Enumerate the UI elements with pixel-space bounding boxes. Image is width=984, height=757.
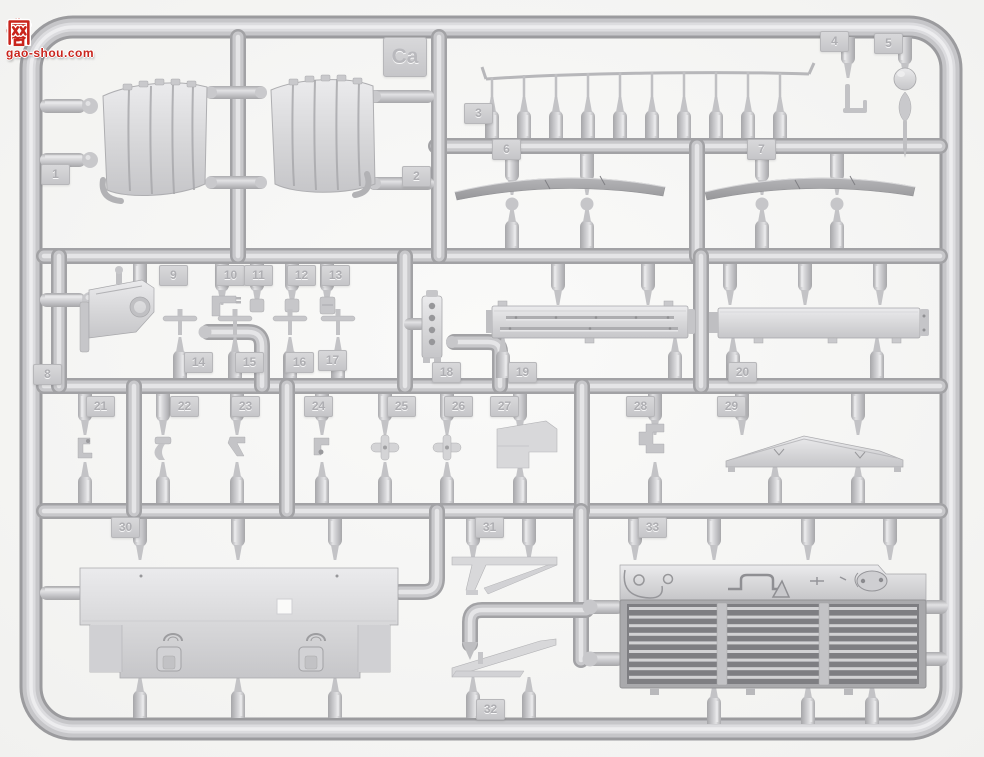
part-tab-29: 29 <box>717 396 746 417</box>
part-tab-28: 28 <box>626 396 655 417</box>
part-tab-27: 27 <box>490 396 519 417</box>
part-tab-24: 24 <box>304 396 333 417</box>
part-tab-25: 25 <box>387 396 416 417</box>
part-tab-32: 32 <box>476 699 505 720</box>
watermark-site-text: gao-shou.com <box>6 46 94 60</box>
part-18-ladder <box>422 290 442 363</box>
kit-sprue-photo: Ca 1 2 3 4 5 6 7 8 9 10 11 12 13 14 15 1… <box>0 0 984 757</box>
watermark-logo: 高 网 <box>6 18 94 46</box>
part-tab-11: 11 <box>244 265 273 286</box>
part-tab-13: 13 <box>321 265 350 286</box>
part-tab-23: 23 <box>231 396 260 417</box>
part-tab-18: 18 <box>432 362 461 383</box>
part-tab-20: 20 <box>728 362 757 383</box>
sprue-letter-tab: Ca <box>383 37 427 77</box>
part-tab-12: 12 <box>287 265 316 286</box>
part-tab-7: 7 <box>747 139 776 160</box>
part-1-cowling <box>103 79 207 201</box>
part-30-panel <box>80 568 398 678</box>
part-tab-10: 10 <box>216 265 245 286</box>
part-tab-26: 26 <box>444 396 473 417</box>
part-tab-2: 2 <box>402 166 431 187</box>
part-tab-5: 5 <box>874 33 903 54</box>
part-tab-33: 33 <box>638 517 667 538</box>
part-tab-21: 21 <box>86 396 115 417</box>
part-tab-15: 15 <box>235 352 264 373</box>
part-tab-30: 30 <box>111 517 140 538</box>
part-tab-3: 3 <box>464 103 493 124</box>
part-tab-17: 17 <box>318 350 347 371</box>
part-2-cowling <box>271 75 375 195</box>
part-tab-4: 4 <box>820 31 849 52</box>
part-tab-16: 16 <box>285 352 314 373</box>
watermark: 高 网 gao-shou.com <box>6 18 94 60</box>
part-tab-31: 31 <box>475 517 504 538</box>
part-19-box <box>486 301 695 343</box>
part-tab-6: 6 <box>492 139 521 160</box>
part-33-radiator <box>620 565 926 695</box>
part-tab-22: 22 <box>170 396 199 417</box>
part-tab-1: 1 <box>41 164 70 185</box>
watermark-char-wang <box>6 18 32 46</box>
part-20-box <box>709 308 929 343</box>
part-tab-14: 14 <box>184 352 213 373</box>
part-tab-9: 9 <box>159 265 188 286</box>
part-tab-8: 8 <box>33 364 62 385</box>
part-tab-19: 19 <box>508 362 537 383</box>
